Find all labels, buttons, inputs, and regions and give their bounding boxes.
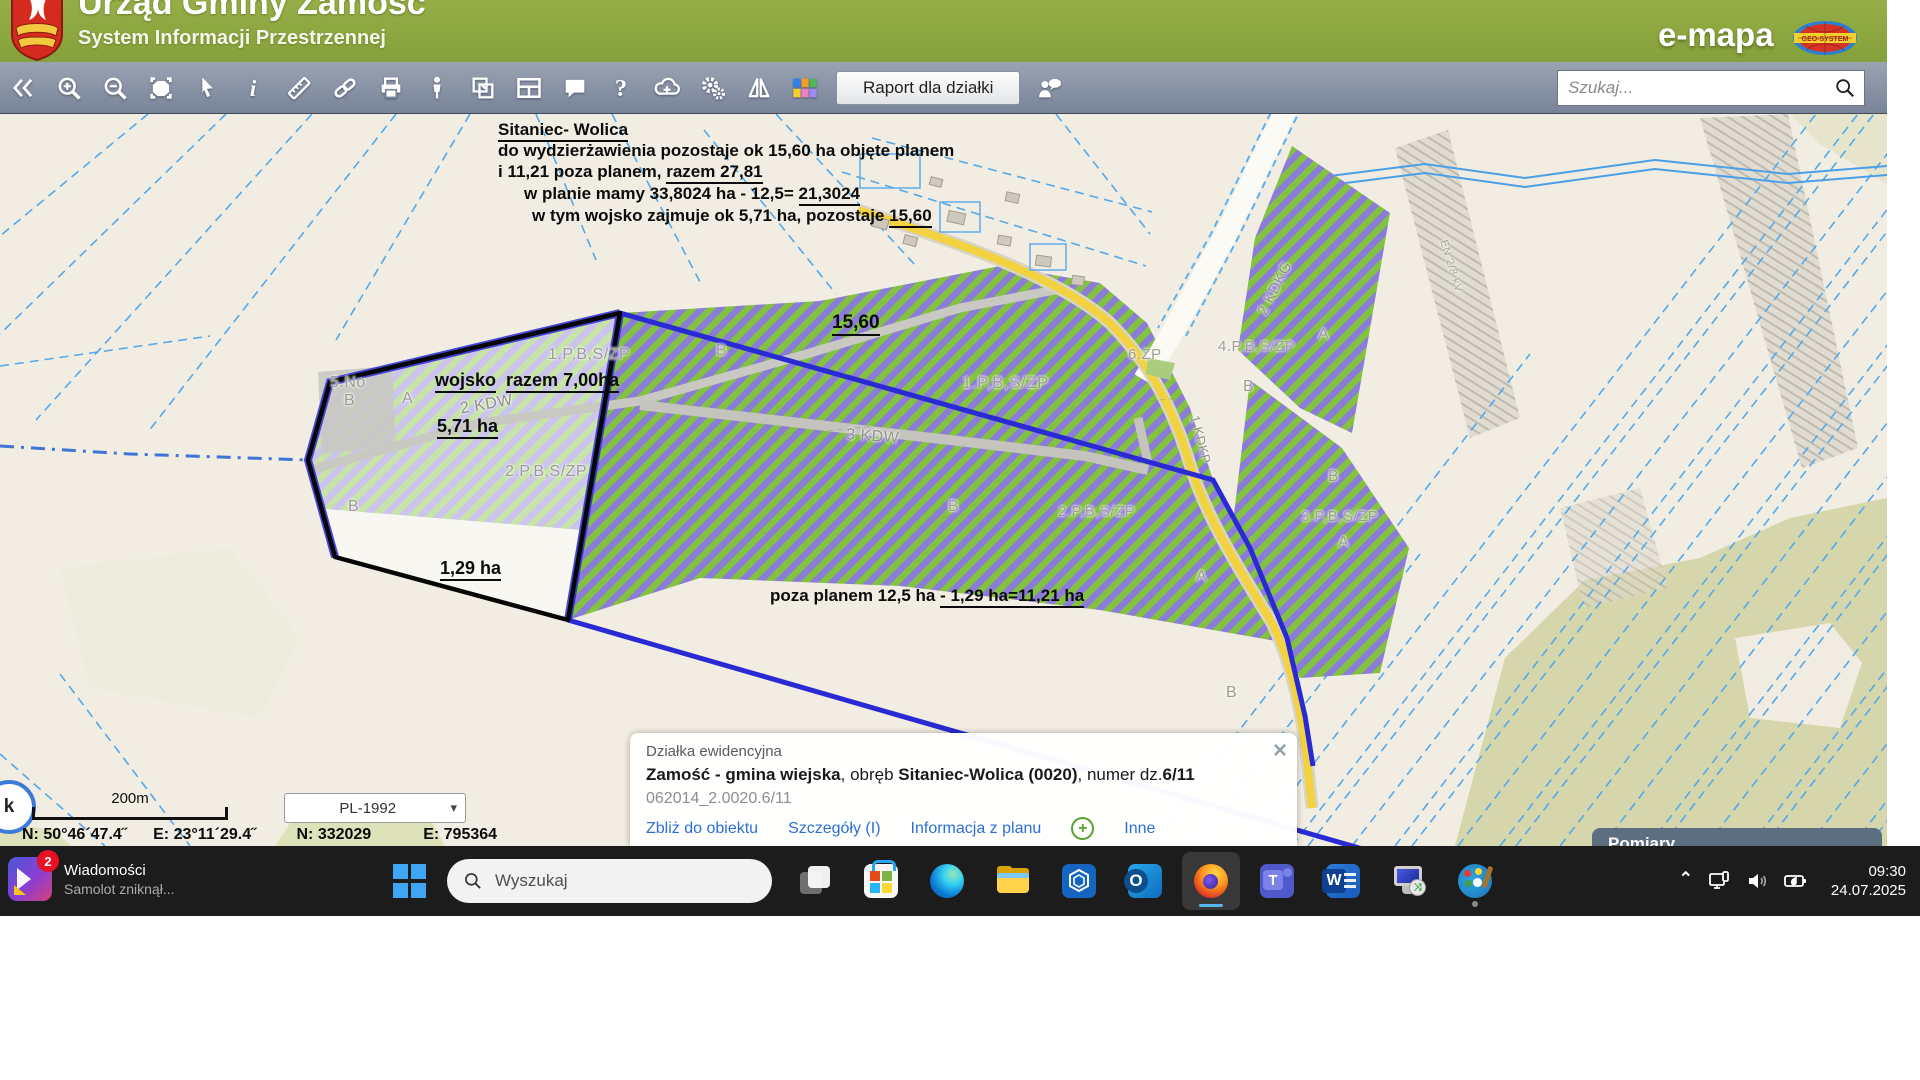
plan-label: B <box>348 498 359 516</box>
add-plus-icon[interactable]: + <box>1071 817 1094 840</box>
road-label: 3 KDW <box>845 426 899 448</box>
zoom-in-icon[interactable] <box>46 65 92 111</box>
comment-icon[interactable] <box>552 65 598 111</box>
plan-label: B <box>1243 378 1254 396</box>
clock-date: 24.07.2025 <box>1831 881 1906 901</box>
measure-icon[interactable] <box>276 65 322 111</box>
link-icon[interactable] <box>322 65 368 111</box>
task-view-icon[interactable] <box>786 852 844 910</box>
emapa-logo: e-mapa <box>1658 16 1774 54</box>
plan-label: 1.P,B,S/ZP <box>548 346 630 364</box>
annotation-title: Sitaniec- Wolica <box>498 120 628 140</box>
plan-label: 2.P,B,S/ZP <box>1058 503 1135 520</box>
plan-label: 4.P,B,S/ZP <box>1218 338 1295 355</box>
annotation-area-1560: 15,60 <box>832 312 880 334</box>
plan-label: A <box>1338 534 1349 552</box>
chevron-down-icon: ▾ <box>450 800 457 816</box>
annotation-line: w planie mamy 33,8024 ha - 12,5= 21,3024 <box>524 184 860 204</box>
plan-label: 1.P,B,S/ZP <box>962 373 1049 393</box>
scale-label: 200m <box>32 790 228 807</box>
svg-text:?: ? <box>615 75 627 102</box>
map-viewport[interactable]: 1.P,B,S/ZP 2.P,B,S/ZP 1.P,B,S/ZP 2.P,B,S… <box>0 114 1887 846</box>
crs-select[interactable]: PL-1992 ▾ <box>284 793 466 823</box>
layout-icon[interactable] <box>506 65 552 111</box>
zoom-out-icon[interactable] <box>92 65 138 111</box>
search-icon[interactable] <box>1834 77 1856 99</box>
plan-label: A <box>402 390 413 408</box>
volume-icon[interactable] <box>1745 869 1769 893</box>
cube-app-icon[interactable] <box>1050 852 1108 910</box>
parcel-name: Zamość - gmina wiejska, obręb Sitaniec-W… <box>646 765 1281 785</box>
taskbar-clock[interactable]: 09:30 24.07.2025 <box>1831 862 1906 901</box>
teams-icon[interactable]: T <box>1248 852 1306 910</box>
annotation-wojsko: wojsko razem 7,00ha <box>435 370 619 391</box>
site-subtitle: System Informacji Przestrzennej <box>78 27 386 50</box>
scale-bar-line <box>32 807 228 820</box>
notification-badge: 2 <box>37 850 59 872</box>
outlook-icon[interactable]: O <box>1116 852 1174 910</box>
measurements-panel-title: Pomiary <box>1608 834 1675 846</box>
annotation-area-571: 5,71 ha <box>437 416 498 437</box>
settings-icon[interactable] <box>690 65 736 111</box>
plan-label: B <box>1226 684 1237 702</box>
svg-text:i: i <box>250 76 257 102</box>
plan-label: B <box>716 342 727 360</box>
app-header: Urząd Gminy Zamość System Informacji Prz… <box>0 0 1887 62</box>
plan-label: 2.P,B,S/ZP <box>505 463 587 481</box>
copy-map-icon[interactable] <box>460 65 506 111</box>
widgets-icon: 2 <box>8 857 52 901</box>
widgets-button[interactable]: 2 Wiadomości Samolot zniknął... <box>8 857 175 901</box>
explorer-icon[interactable] <box>984 852 1042 910</box>
search-icon <box>463 871 483 891</box>
street-view-icon[interactable] <box>414 65 460 111</box>
scale-bar: 200m <box>32 790 228 820</box>
select-area-icon[interactable] <box>138 65 184 111</box>
close-icon[interactable]: × <box>1273 737 1287 765</box>
pointer-icon[interactable] <box>184 65 230 111</box>
map-search-box <box>1557 70 1865 106</box>
annotation-line: w tym wojsko zajmuje ok 5,71 ha, pozosta… <box>532 206 932 226</box>
report-button-label: Raport dla działki <box>863 78 993 98</box>
gmina-coat-of-arms <box>8 0 66 62</box>
battery-saver-icon[interactable] <box>1783 869 1807 893</box>
plan-label: 3.P,B,S/ZP <box>1301 508 1378 525</box>
legend-icon[interactable] <box>782 65 828 111</box>
compare-icon[interactable] <box>736 65 782 111</box>
annotation-poza-planem: poza planem 12,5 ha - 1,29 ha=11,21 ha <box>770 586 1084 606</box>
taskbar-search[interactable]: Wyszukaj <box>447 859 772 903</box>
crs-value: PL-1992 <box>285 800 450 817</box>
widget-headline: Wiadomości <box>64 862 175 879</box>
widget-subtext: Samolot zniknął... <box>64 881 175 897</box>
download-icon[interactable] <box>644 65 690 111</box>
word-icon[interactable]: W <box>1314 852 1372 910</box>
firefox-icon[interactable] <box>1182 852 1240 910</box>
coordinates-readout: N: 50°46´47.4˝E: 23°11´29.4˝ N: 332029 E… <box>22 826 497 844</box>
plan-info-link[interactable]: Informacja z planu <box>911 820 1042 838</box>
map-toolbar: i ? <box>0 62 1887 114</box>
start-button[interactable] <box>393 864 427 898</box>
details-link[interactable]: Szczegóły (I) <box>788 820 880 838</box>
measurements-panel[interactable]: Pomiary <box>1592 828 1882 846</box>
plan-label: B <box>344 392 355 410</box>
plan-label: B <box>948 498 959 516</box>
report-dla-dzialki-button[interactable]: Raport dla działki <box>836 71 1020 105</box>
geosystem-logo-icon: GEO-SYSTEM <box>1792 20 1858 56</box>
parcel-type-label: Działka ewidencyjna <box>646 743 1281 760</box>
help-icon[interactable]: ? <box>598 65 644 111</box>
zoom-to-object-link[interactable]: Zbliż do obiektu <box>646 820 758 838</box>
taskbar-search-label: Wyszukaj <box>495 871 568 891</box>
plan-label: A <box>1196 568 1207 586</box>
remote-desktop-icon[interactable]: ⤨ <box>1380 852 1438 910</box>
plan-label: A <box>1318 326 1329 344</box>
annotation-line: i 11,21 poza planem, razem 27,81 <box>498 162 763 182</box>
annotation-line: do wydzierżawienia pozostaje ok 15,60 ha… <box>498 141 954 161</box>
store-icon[interactable] <box>852 852 910 910</box>
plan-label: 6.ZP <box>1128 346 1162 363</box>
annotation-area-129: 1,29 ha <box>440 558 501 579</box>
plan-label: B <box>1328 468 1339 486</box>
feedback-person-icon[interactable] <box>1026 65 1072 111</box>
screen: Urząd Gminy Zamość System Informacji Prz… <box>0 0 1920 1080</box>
other-link[interactable]: Inne <box>1124 820 1155 838</box>
print-icon[interactable] <box>368 65 414 111</box>
clock-time: 09:30 <box>1831 862 1906 882</box>
map-search-input[interactable] <box>1558 78 1834 98</box>
dock-device-icon[interactable] <box>1707 869 1731 893</box>
info-icon[interactable]: i <box>230 65 276 111</box>
paint-icon[interactable] <box>1446 852 1504 910</box>
tray-chevron-up-icon[interactable]: ⌃ <box>1679 869 1693 889</box>
windows-taskbar: 2 Wiadomości Samolot zniknął... Wyszukaj <box>0 846 1920 916</box>
edge-icon[interactable] <box>918 852 976 910</box>
parcel-info-panel: × Działka ewidencyjna Zamość - gmina wie… <box>630 733 1297 846</box>
collapse-left-icon[interactable] <box>0 65 46 111</box>
site-title: Urząd Gminy Zamość <box>78 0 426 23</box>
parcel-id: 062014_2.0020.6/11 <box>646 790 1281 808</box>
plan-label: 5.No <box>330 374 366 392</box>
